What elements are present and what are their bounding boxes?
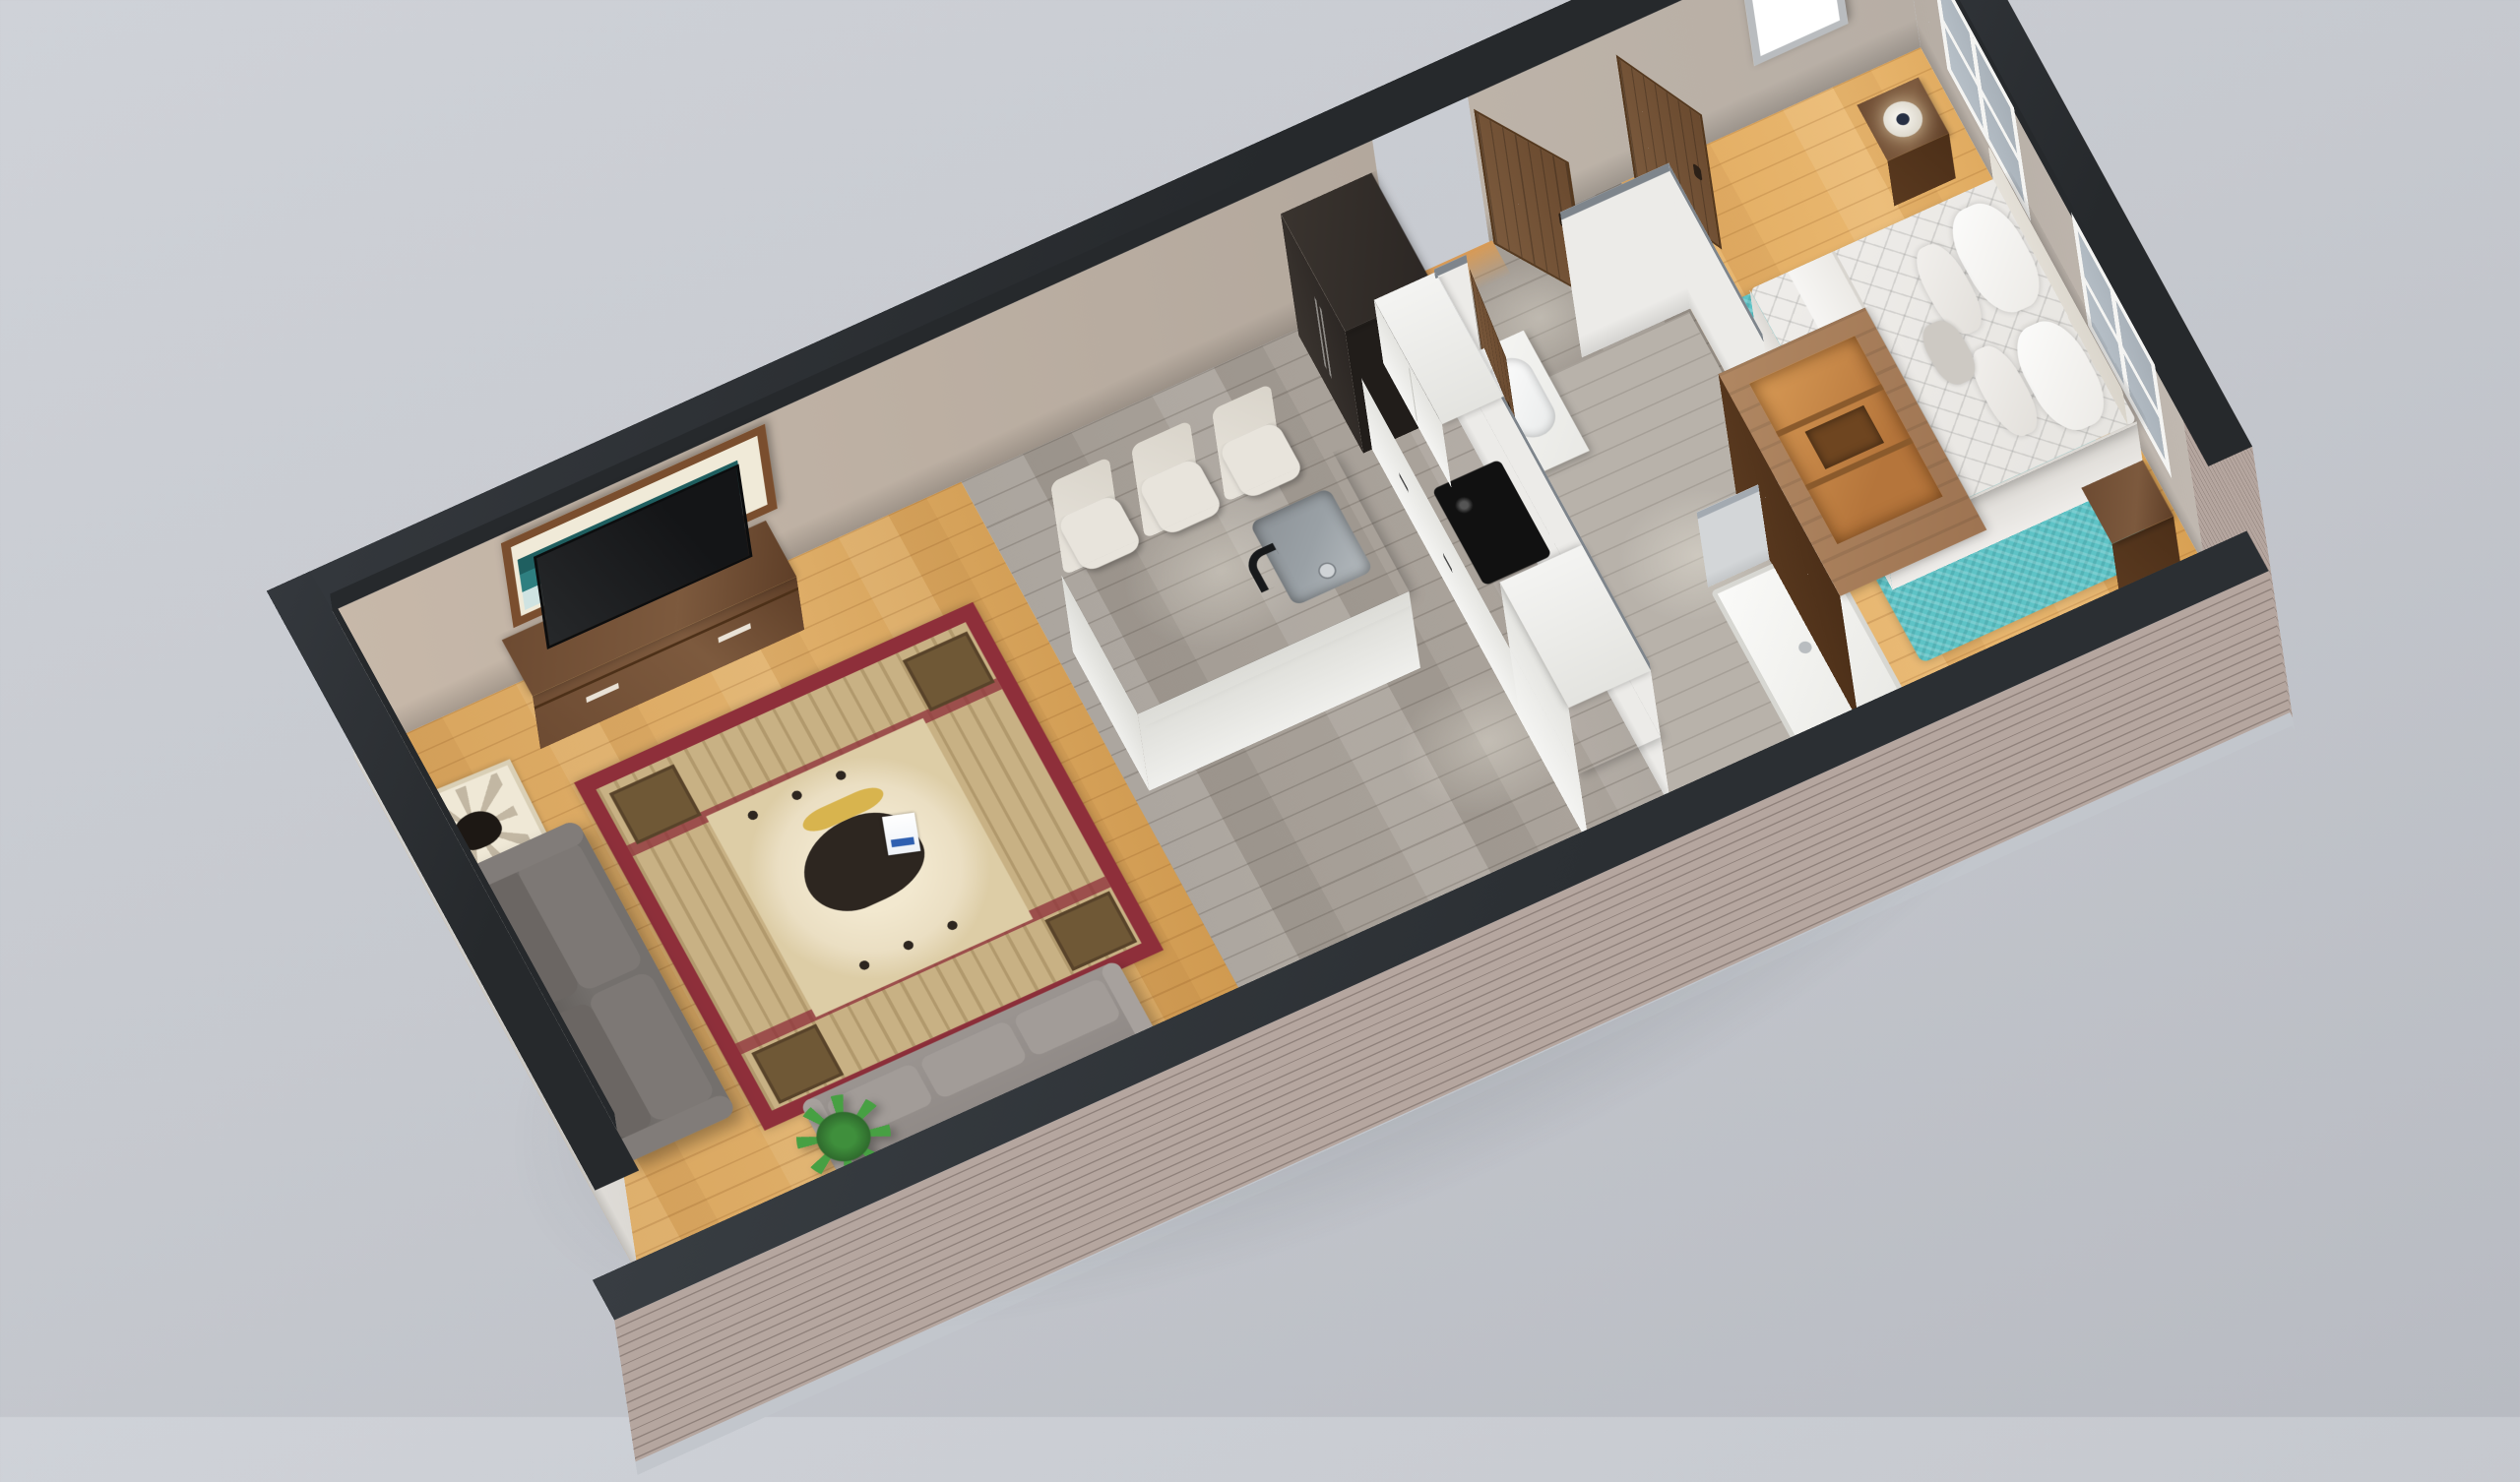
cabinet-handle xyxy=(1443,553,1453,573)
drawer-handle xyxy=(586,683,619,703)
drawer-handle xyxy=(718,623,751,643)
framed-starburst-art xyxy=(1741,0,1848,66)
cabinet-handle xyxy=(1399,472,1409,492)
shower-drain xyxy=(1796,640,1814,655)
starburst-paint xyxy=(1759,0,1819,48)
rug-label-paper xyxy=(882,813,920,855)
sink-drain xyxy=(1315,560,1340,582)
render-canvas: { "scene": { "kind": "axonometric-cutawa… xyxy=(0,0,2520,1417)
label-print xyxy=(891,836,914,847)
door-handle xyxy=(1693,162,1703,181)
